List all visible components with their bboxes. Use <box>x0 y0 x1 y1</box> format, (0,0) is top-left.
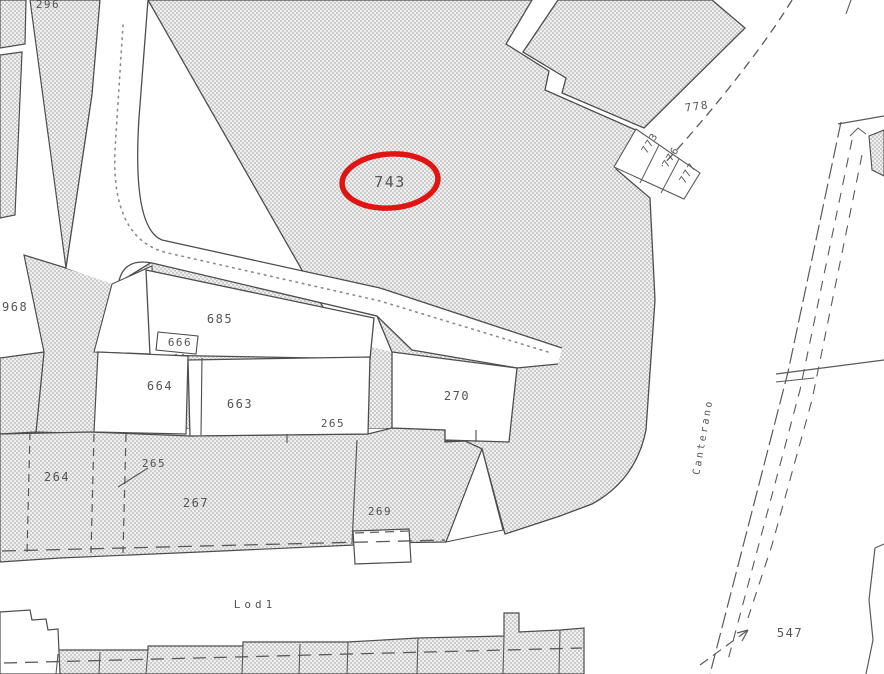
parcel-region-664[interactable] <box>94 352 188 434</box>
parcel-region-below-968 <box>0 352 44 434</box>
boundary-line <box>838 116 884 124</box>
parcel-label-547: 547 <box>777 626 803 640</box>
cadastral-map-viewport[interactable]: 296 743 778 773 776 777 968 685 666 664 … <box>0 0 884 674</box>
parcel-label-685: 685 <box>207 312 233 326</box>
parcel-region-right-triangle <box>869 130 884 176</box>
parcel-label-666: 666 <box>168 336 192 349</box>
parcel-label-296: 296 <box>36 0 60 11</box>
cadastral-map-canvas: 296 743 778 773 776 777 968 685 666 664 … <box>0 0 884 674</box>
street-label-canterano: Canterano <box>691 398 715 475</box>
street-label-lodi: Lod1 <box>234 598 277 611</box>
arrow-leader-547 <box>700 630 748 665</box>
parcel-label-778: 778 <box>684 98 710 114</box>
parcel-label-264: 264 <box>44 470 70 484</box>
boundary-line <box>866 548 875 674</box>
parcel-label-269: 269 <box>368 505 392 518</box>
parcel-region-notch-269 <box>353 529 411 564</box>
parcel-label-270: 270 <box>444 389 470 403</box>
parcel-region-bottom-left <box>0 610 60 674</box>
parcel-region-topleft <box>0 0 26 48</box>
tick-mark <box>875 544 884 548</box>
parcel-label-265-inline: 265 <box>321 417 345 430</box>
tick-mark <box>850 128 866 136</box>
parcel-label-265: 265 <box>142 457 166 470</box>
parcel-label-664: 664 <box>147 379 173 393</box>
tick-mark <box>846 0 851 14</box>
parcel-region-left-strip <box>0 52 22 218</box>
parcel-region-bottom-strip <box>0 613 584 674</box>
parcel-label-267: 267 <box>183 496 209 510</box>
dashed-boundary <box>728 140 852 660</box>
canterano-road-edge <box>710 122 841 674</box>
boundary-line <box>776 360 884 374</box>
boundary-line <box>776 378 814 382</box>
dashed-boundary <box>748 155 862 618</box>
parcel-label-968: 968 <box>2 300 28 314</box>
parcel-label-663: 663 <box>227 397 253 411</box>
parcel-label-743: 743 <box>374 173 406 191</box>
